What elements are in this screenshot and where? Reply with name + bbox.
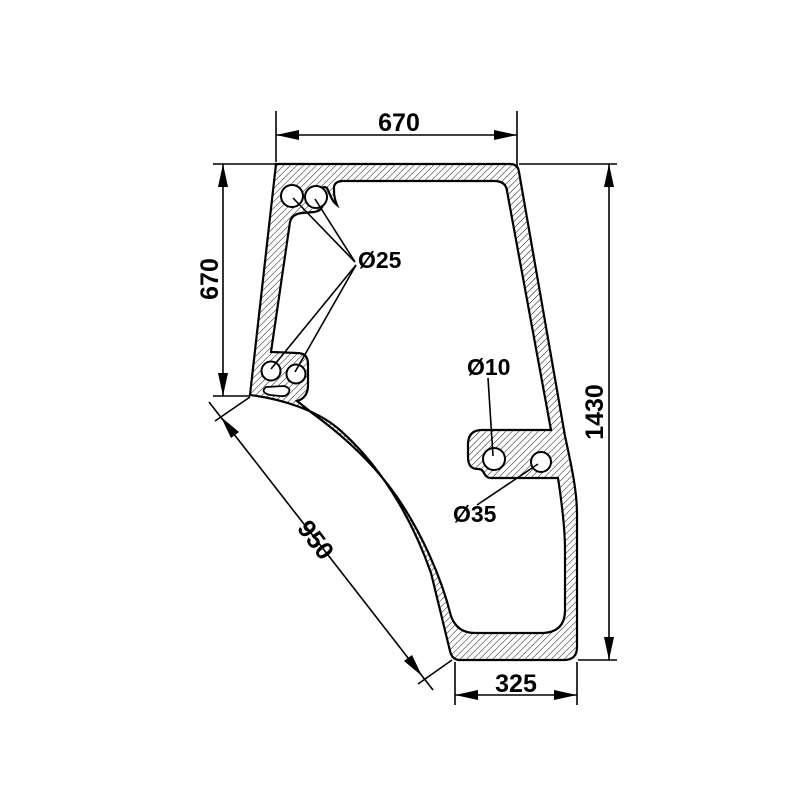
arrowhead-lower — [404, 655, 422, 676]
mid-left-hole-1 — [262, 362, 281, 381]
right-bracket-small-hole — [483, 448, 505, 470]
leader-o25-top-hole-2 — [315, 199, 355, 262]
dimension-value-diagonal: 950 — [292, 515, 340, 565]
top-left-hole-1 — [281, 185, 303, 207]
arrowhead-left — [455, 690, 478, 700]
leader-o25-mid-hole-1 — [271, 265, 356, 369]
arrowhead-right — [554, 690, 577, 700]
dimension-value-left-height: 670 — [196, 258, 224, 300]
dimension-bottom-width: 325 — [455, 662, 577, 705]
right-bracket-large-hole — [531, 452, 551, 472]
arrowhead-down — [604, 637, 614, 660]
arrowhead-up — [218, 164, 228, 187]
door-glass-technical-drawing: 670 670 1430 950 — [0, 0, 800, 800]
arrowhead-left — [276, 130, 299, 140]
dimension-value-right-height: 1430 — [581, 384, 609, 440]
arrowhead-down — [218, 373, 228, 396]
hole-label-o10: Ø10 — [467, 354, 510, 380]
arrowhead-upper — [221, 417, 239, 438]
arrowhead-right — [494, 130, 517, 140]
hole-label-o35: Ø35 — [453, 501, 497, 527]
dimension-value-top-width: 670 — [378, 109, 420, 137]
dimension-value-bottom-width: 325 — [495, 670, 537, 698]
frame-cross-section — [250, 164, 577, 660]
leader-o25-top-hole-1 — [293, 198, 355, 262]
mid-left-hole-2 — [287, 365, 306, 384]
extension-line — [418, 660, 452, 684]
dimension-diagonal: 950 — [209, 397, 452, 690]
leader-o25-mid-hole-2 — [295, 265, 356, 372]
glass-panel-profile — [250, 164, 577, 660]
channel-pocket — [264, 386, 290, 396]
arrowhead-up — [604, 164, 614, 187]
top-left-hole-2 — [305, 186, 327, 208]
hole-label-o25: Ø25 — [358, 247, 402, 273]
dimension-top-width: 670 — [276, 109, 517, 168]
drawing-canvas: 670 670 1430 950 — [0, 0, 800, 800]
